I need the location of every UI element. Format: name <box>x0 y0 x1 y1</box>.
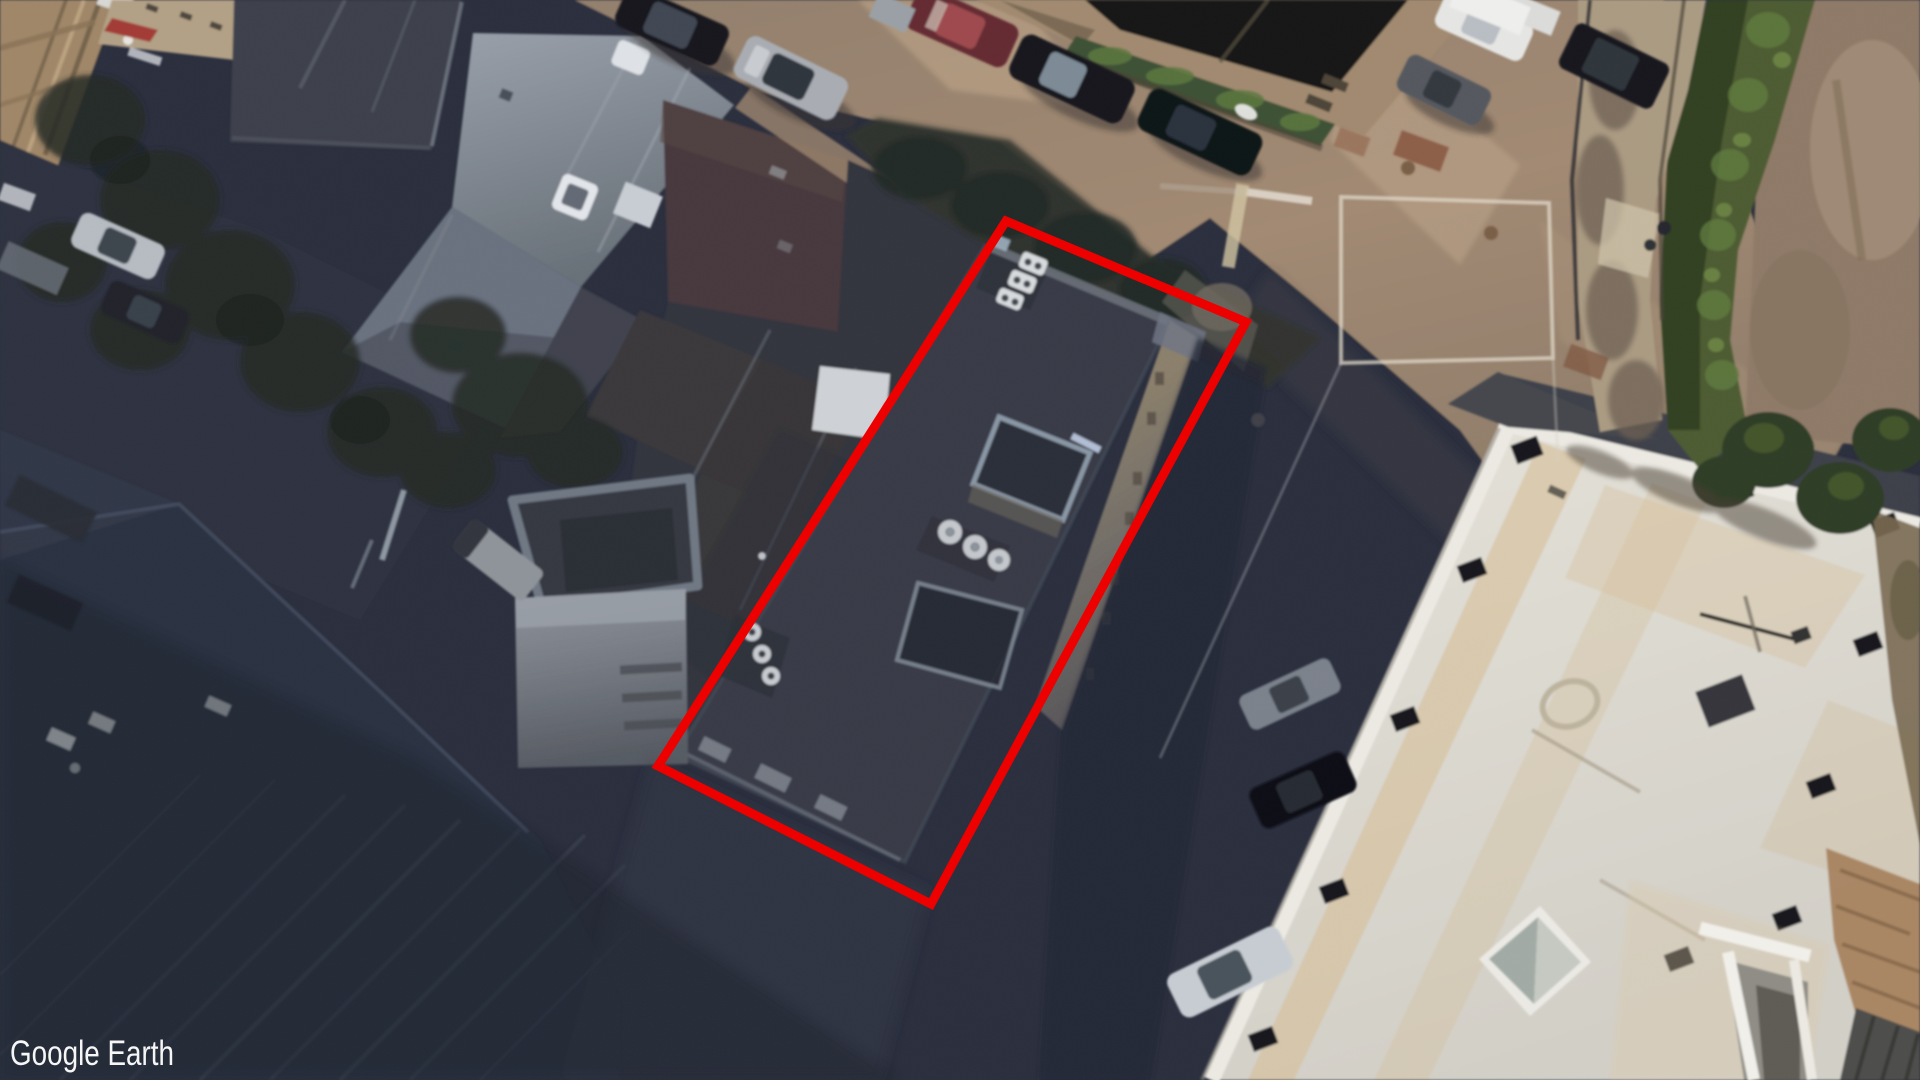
svg-text:Google Earth: Google Earth <box>10 1034 174 1073</box>
